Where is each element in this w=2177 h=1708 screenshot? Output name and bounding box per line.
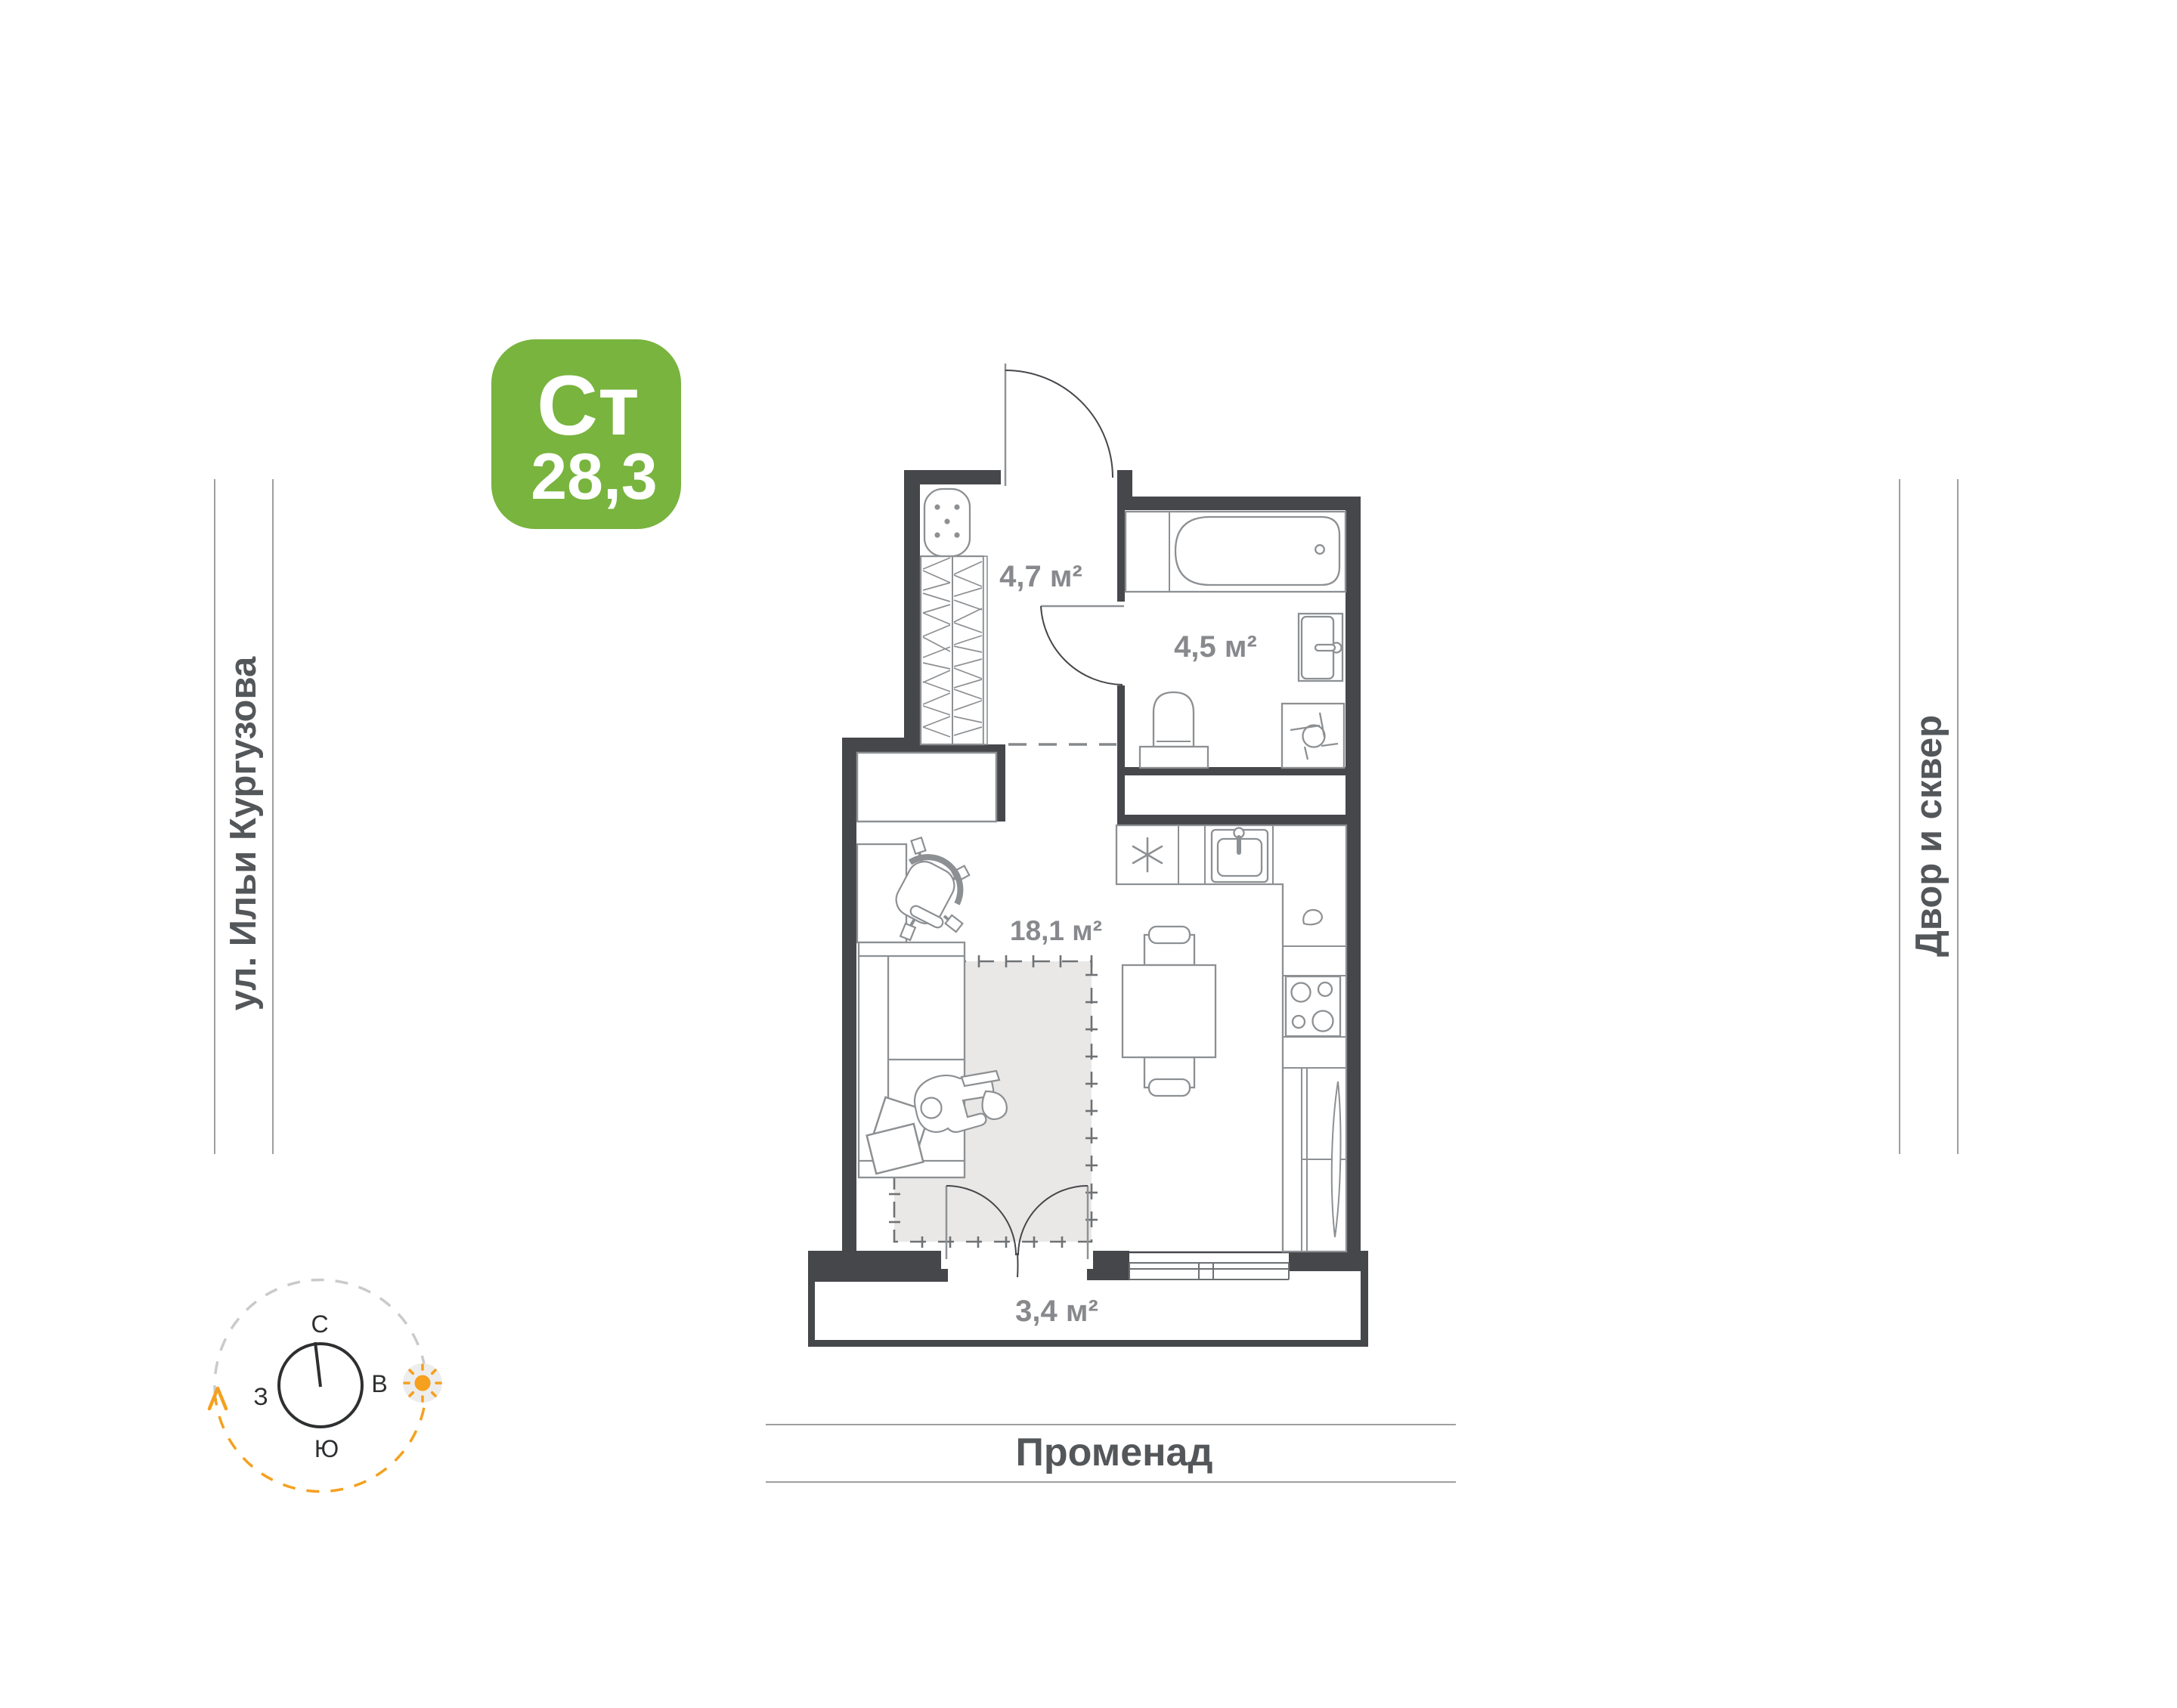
svg-text:В: В (371, 1370, 387, 1397)
svg-text:3,4 м²: 3,4 м² (1015, 1295, 1098, 1328)
svg-text:Ст: Ст (537, 358, 639, 453)
svg-text:4,5 м²: 4,5 м² (1174, 630, 1257, 664)
svg-text:Ю: Ю (314, 1435, 339, 1462)
svg-text:Двор и сквер: Двор и сквер (1909, 715, 1949, 957)
svg-text:З: З (253, 1383, 268, 1410)
svg-text:4,7 м²: 4,7 м² (999, 560, 1082, 593)
svg-text:ул. Ильи Кургузова: ул. Ильи Кургузова (223, 656, 264, 1010)
svg-text:Променад: Променад (1016, 1431, 1213, 1474)
svg-text:С: С (311, 1310, 328, 1338)
svg-text:28,3: 28,3 (531, 441, 657, 513)
svg-text:18,1 м²: 18,1 м² (1010, 915, 1102, 946)
